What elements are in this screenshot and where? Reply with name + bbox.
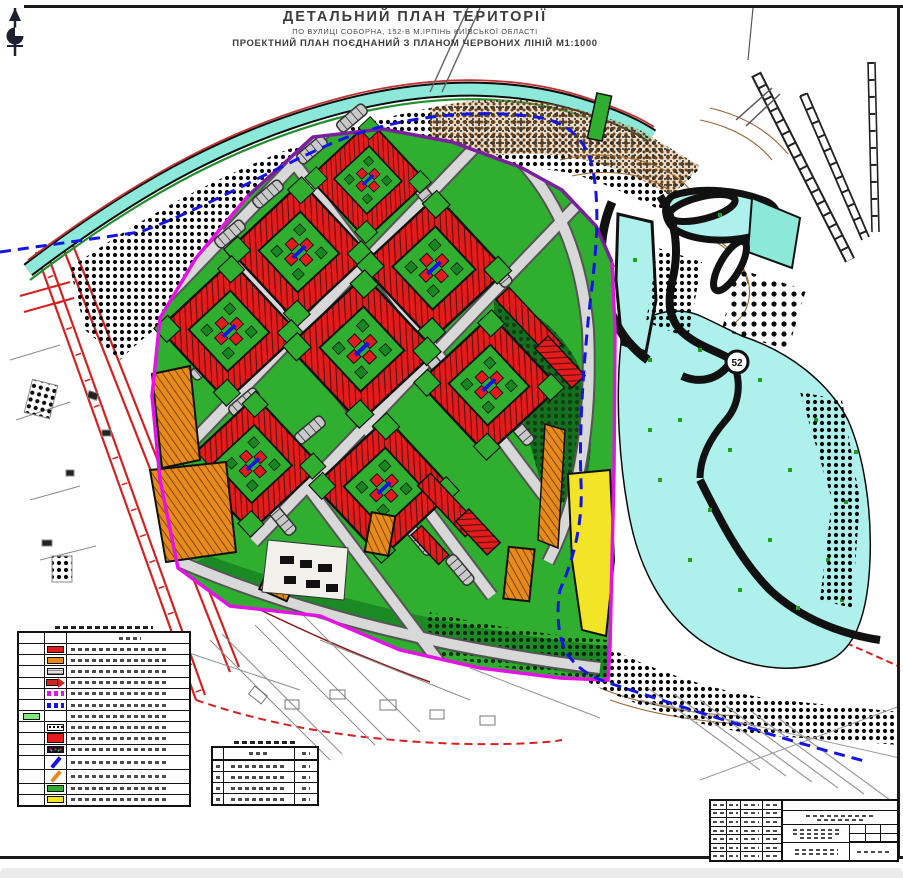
drawing-sheet: 52 <box>0 0 903 878</box>
orange-fill-swatch <box>47 657 64 664</box>
legend-row <box>19 711 189 722</box>
legend-row <box>19 756 189 770</box>
light-green-fill-swatch <box>23 713 40 720</box>
legend-row <box>19 655 189 666</box>
aux-table-row <box>213 772 317 783</box>
legend-title-illegible <box>55 626 153 629</box>
aux-table-row <box>213 794 317 804</box>
legend-row <box>19 770 189 784</box>
green-fill-swatch <box>47 785 64 792</box>
legend-row <box>19 678 189 689</box>
blue-arrow-swatch <box>50 756 61 769</box>
legend-row <box>19 689 189 700</box>
title-block-scale-cell <box>850 843 897 860</box>
magenta-dashed-swatch <box>47 691 64 696</box>
title-line-2: ПО ВУЛИЦІ СОБОРНА, 152-В М.ІРПІНЬ КИЇВСЬ… <box>0 27 830 36</box>
dark-mixed-swatch <box>47 746 64 753</box>
title-block-row-top <box>783 801 897 811</box>
title-block-grid-row <box>711 844 781 853</box>
title-block-grid <box>711 801 783 860</box>
map-label-52: 52 <box>731 358 743 369</box>
legend-row <box>19 733 189 744</box>
teal-patch-right <box>748 198 800 268</box>
title-block-grid-row <box>711 835 781 844</box>
orange-arrow-swatch <box>50 770 61 783</box>
title-block-stage-cells <box>850 825 897 842</box>
window-bottom-strip <box>0 868 903 878</box>
title-block-project-name <box>783 811 897 825</box>
legend-row <box>19 722 189 733</box>
legend-table <box>17 631 191 807</box>
title-block-grid-row <box>711 852 781 860</box>
yellow-fill-swatch <box>47 796 64 803</box>
aux-table-row <box>213 783 317 794</box>
legend-row <box>19 633 189 644</box>
title-block-grid-row <box>711 810 781 819</box>
school-patch <box>262 540 348 600</box>
sheet-frame-top <box>24 5 903 8</box>
aux-table <box>211 741 319 806</box>
blue-dashed-swatch <box>47 703 64 708</box>
sheet-title: ДЕТАЛЬНИЙ ПЛАН ТЕРИТОРІЇ ПО ВУЛИЦІ СОБОР… <box>0 9 830 49</box>
legend-row <box>19 666 189 677</box>
red-line-arrow-swatch <box>46 678 65 688</box>
legend-row <box>19 644 189 655</box>
title-block-org <box>783 843 850 860</box>
legend-row <box>19 784 189 795</box>
aux-table-header <box>213 748 317 761</box>
legend-row <box>19 700 189 711</box>
title-line-1: ДЕТАЛЬНИЙ ПЛАН ТЕРИТОРІЇ <box>0 9 830 25</box>
red-fill-swatch <box>47 646 64 653</box>
red-fill-large-swatch <box>47 733 64 743</box>
aux-table-title-illegible <box>234 741 296 744</box>
title-block-grid-row <box>711 827 781 836</box>
legend-row <box>19 745 189 756</box>
legend-row <box>19 795 189 805</box>
title-line-3: ПРОЕКТНИЙ ПЛАН ПОЄДНАНИЙ З ПЛАНОМ ЧЕРВОН… <box>0 38 830 49</box>
title-block <box>709 799 899 862</box>
sheet-frame-right <box>897 5 900 857</box>
left-cadastral-linework <box>10 345 111 582</box>
aux-table-row <box>213 761 317 772</box>
black-stipple-swatch <box>47 724 64 731</box>
title-block-grid-row <box>711 818 781 827</box>
gray-hatch-swatch <box>47 668 64 675</box>
title-block-grid-row <box>711 801 781 810</box>
title-block-sheet-name <box>783 825 850 842</box>
legend <box>17 626 191 807</box>
